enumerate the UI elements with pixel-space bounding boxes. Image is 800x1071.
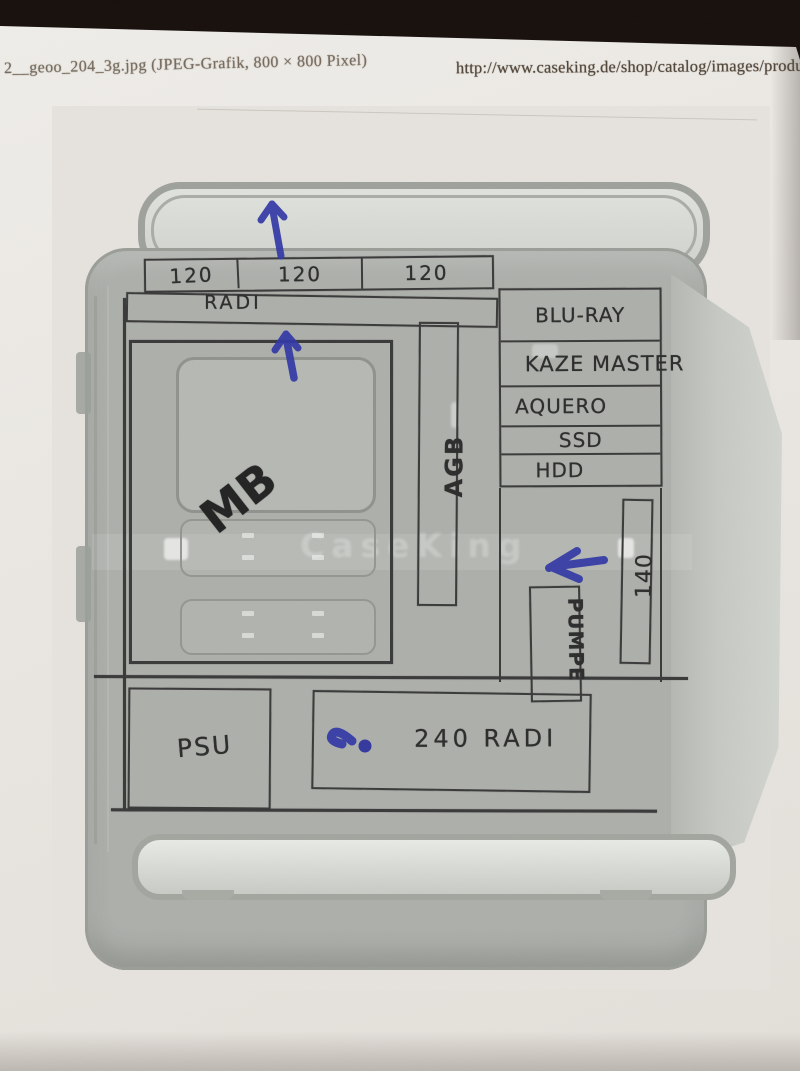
- case-hinge-tab: [76, 546, 91, 622]
- motherboard-box: MB: [129, 340, 393, 664]
- pump-label: PUMPE: [563, 597, 588, 682]
- bay-row-ssd: SSD: [501, 427, 660, 456]
- paper-edge-shadow: [770, 40, 800, 340]
- fan-120-cell: 120: [239, 259, 363, 290]
- bay-row-kaze-master: KAZE MASTER: [501, 342, 660, 388]
- case-foot: [600, 890, 652, 900]
- printed-filename-caption: 2__geoo_204_3g.jpg (JPEG-Grafik, 800 × 8…: [4, 52, 368, 78]
- bay-row-hdd: HDD: [501, 455, 660, 488]
- sketch-frame-left: [123, 298, 126, 810]
- fan-140-label: 140: [632, 553, 658, 598]
- top-fan-row: 120 120 120: [144, 255, 494, 293]
- case-hinge-tab: [76, 352, 91, 414]
- paper-sheet: 2__geoo_204_3g.jpg (JPEG-Grafik, 800 × 8…: [0, 0, 800, 1071]
- reservoir-label: AGB: [440, 435, 468, 498]
- fan-140-box: 140: [620, 499, 654, 665]
- reservoir-column: AGB: [417, 322, 459, 606]
- bay-row-bluray: BLU-RAY: [500, 290, 659, 343]
- pump-box: PUMPE: [529, 586, 582, 703]
- case-foot: [182, 890, 234, 900]
- bottom-radiator-box: 240 RADI: [311, 690, 591, 793]
- drive-cage-cutout: [180, 599, 376, 655]
- case-left-rail: [94, 296, 97, 844]
- paper-bottom-shadow: [0, 1031, 800, 1071]
- case-photo: CaseKing 120 120 120 RADI: [52, 106, 770, 990]
- drive-bay-column: BLU-RAY KAZE MASTER AQUERO SSD HDD: [498, 288, 662, 488]
- fan-120-cell: 120: [145, 258, 239, 292]
- psu-label: PSU: [176, 730, 233, 763]
- photo-top-edge: [197, 109, 757, 121]
- fan-120-cell: 120: [363, 257, 490, 288]
- printed-url: http://www.caseking.de/shop/catalog/imag…: [456, 56, 800, 78]
- photographed-printout: 2__geoo_204_3g.jpg (JPEG-Grafik, 800 × 8…: [0, 0, 800, 1071]
- radiator-label: RADI: [204, 292, 262, 314]
- bay-row-aquero: AQUERO: [501, 387, 660, 428]
- bottom-radiator-label: 240 RADI: [414, 724, 557, 752]
- psu-box: PSU: [128, 688, 272, 810]
